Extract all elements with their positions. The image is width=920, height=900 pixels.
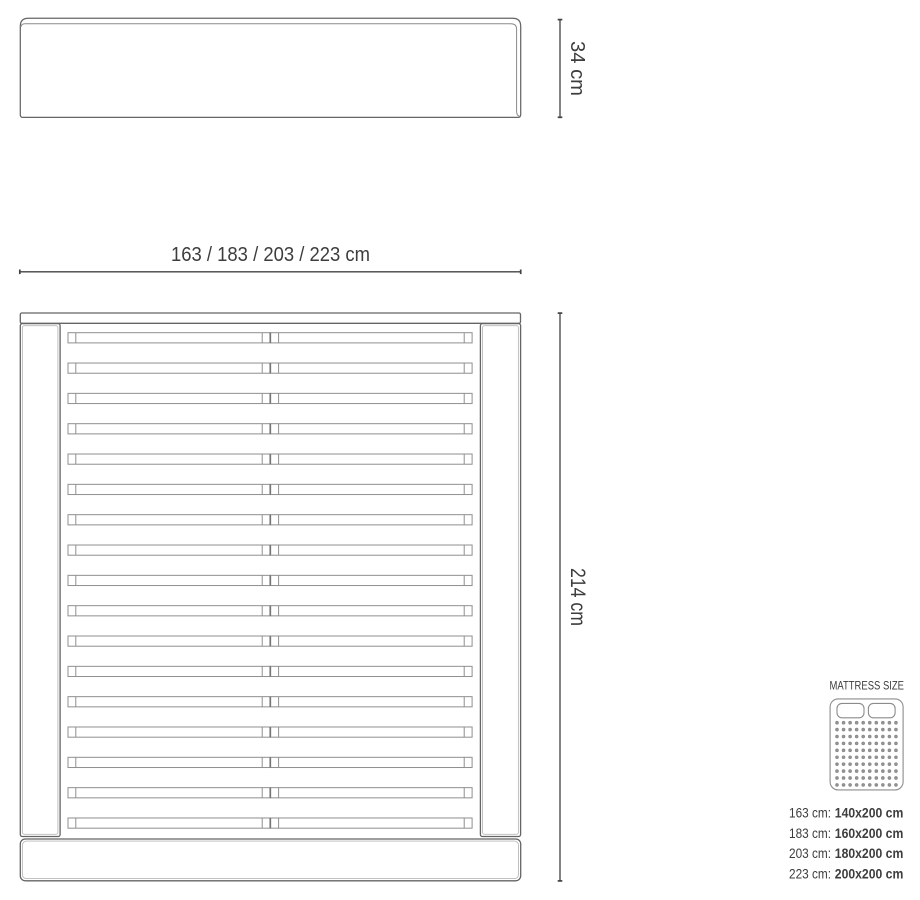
svg-text:34 cm: 34 cm [566, 41, 589, 96]
svg-text:214 cm: 214 cm [566, 568, 589, 626]
svg-text:163 cm:: 163 cm: [789, 806, 831, 821]
svg-text:203 cm:: 203 cm: [789, 846, 831, 861]
svg-text:163 / 183 / 203 / 223 cm: 163 / 183 / 203 / 223 cm [171, 243, 370, 266]
svg-text:160x200 cm: 160x200 cm [835, 826, 904, 841]
svg-text:MATTRESS SIZE: MATTRESS SIZE [830, 679, 905, 693]
svg-text:140x200 cm: 140x200 cm [835, 806, 904, 821]
svg-text:183 cm:: 183 cm: [789, 826, 831, 841]
svg-text:180x200 cm: 180x200 cm [835, 846, 904, 861]
svg-text:223 cm:: 223 cm: [789, 866, 831, 881]
svg-text:200x200 cm: 200x200 cm [835, 866, 904, 881]
